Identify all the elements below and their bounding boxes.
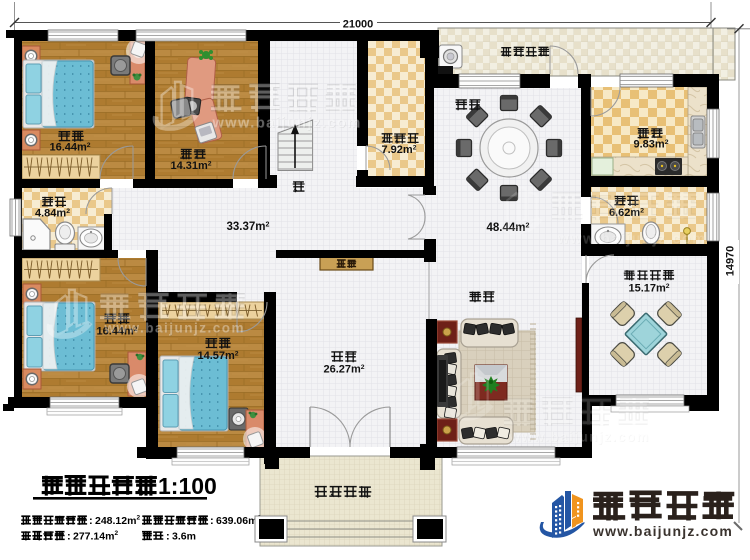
svg-text:26.27m2: 26.27m2 [323,364,364,376]
svg-text:15.17m2: 15.17m2 [628,283,669,295]
svg-text:www.baijunjz.com: www.baijunjz.com [592,523,733,539]
svg-text:14.57m2: 14.57m2 [197,350,238,362]
svg-text:248.12m: 248.12m [95,515,136,527]
svg-text:2: 2 [115,530,119,537]
svg-text:2: 2 [137,515,141,522]
svg-text:639.06m: 639.06m [216,515,257,527]
svg-text:9.83m2: 9.83m2 [634,139,669,151]
svg-text::: : [210,515,214,527]
svg-text:www.baijunjz.com: www.baijunjz.com [104,321,246,336]
svg-text:www.baijunjz.com: www.baijunjz.com [212,116,362,132]
svg-text::: : [166,531,170,543]
svg-text:www.baijunjz.com: www.baijunjz.com [557,232,707,248]
svg-text:14970: 14970 [725,246,737,277]
svg-text:www.baijunjz.com: www.baijunjz.com [509,430,651,445]
svg-text:3.6m: 3.6m [172,531,196,543]
svg-text::: : [89,515,93,527]
svg-text:277.14m: 277.14m [73,531,114,543]
svg-text:14.31m2: 14.31m2 [170,160,211,172]
svg-text:21000: 21000 [343,19,374,31]
svg-text:16.44m2: 16.44m2 [49,142,90,154]
svg-text::: : [67,531,71,543]
svg-text:33.37m2: 33.37m2 [227,221,270,233]
svg-text:4.84m2: 4.84m2 [35,208,70,220]
svg-text:7.92m2: 7.92m2 [382,144,417,156]
svg-text:1:100: 1:100 [158,473,217,499]
